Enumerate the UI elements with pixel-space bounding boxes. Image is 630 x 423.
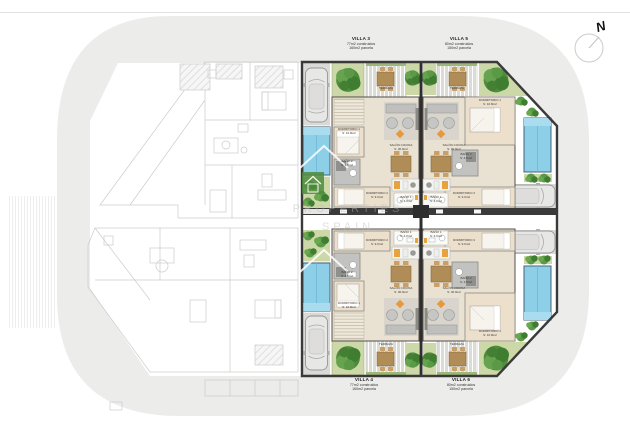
room-label-dorm1-v5: DORMITORIO 1S: 10.8m2 (468, 99, 512, 107)
north-compass (575, 34, 603, 62)
floor-plan-canvas: PROPERTIES SPAIN N VILLA 3 77m2 construi… (0, 0, 630, 423)
villa-6-label: VILLA 6 80m2 construidos 150m2 parcela (430, 377, 492, 391)
room-label-dorm1-v4: DORMITORIO 1S: 10.8m2 (333, 302, 365, 310)
room-label-dorm3-v5: DORMITORIO 3S: 9.0m2 (448, 192, 480, 200)
room-label-bano1-v5: BAÑO 1S: 4.0m2 (423, 196, 449, 204)
room-label-terraza-v6: TERRAZA (442, 343, 472, 347)
room-label-bano2-v5: BAÑO 2S: 4.5m2 (452, 153, 480, 161)
room-label-terraza-v3: TERRAZA (371, 87, 401, 91)
villa-3-label: VILLA 3 77m2 construidos 160m2 parcela (330, 36, 392, 50)
villa-4-label: VILLA 4 77m2 construidos 160m2 parcela (333, 377, 395, 391)
room-label-salon-v4: SALÓN COCINAS: 30.9m2 (384, 287, 418, 295)
room-label-dorm2-v4: DORMITORIO 2S: 9.0m2 (362, 239, 392, 247)
villa-5-label: VILLA 5 80m2 construidos 150m2 parcela (428, 36, 490, 50)
room-label-bano1-v3: BAÑO 1S: 4.0m2 (393, 196, 419, 204)
room-label-salon-v5: SALÓN COCINAS: 30.9m2 (437, 144, 471, 152)
room-label-terraza-v5: TERRAZA (442, 87, 472, 91)
room-label-bano1-v4: BAÑO 1S: 4.0m2 (393, 231, 419, 239)
room-label-dorm2-v3: DORMITORIO 2S: 9.0m2 (362, 192, 392, 200)
room-label-dorm3-v6: DORMITORIO 3S: 9.0m2 (448, 239, 480, 247)
room-label-bano2-v4: BAÑO 2S: 4.5m2 (333, 271, 361, 279)
room-label-dorm1-v6: DORMITORIO 1S: 10.8m2 (468, 330, 512, 338)
room-label-bano2-v3: BAÑO 2S: 4.5m2 (333, 160, 361, 168)
room-label-terraza-v4: TERRAZA (371, 343, 401, 347)
room-label-bano2-v6: BAÑO 2S: 4.5m2 (452, 277, 480, 285)
room-label-bano1-v6: BAÑO 1S: 4.0m2 (423, 231, 449, 239)
room-label-salon-v6: SALÓN COCINAS: 30.9m2 (437, 287, 471, 295)
room-label-salon-v3: SALÓN COCINAS: 30.9m2 (384, 144, 418, 152)
hatched-ground-strip (8, 196, 56, 328)
room-label-dorm1-v3: DORMITORIO 1S: 10.8m2 (333, 128, 365, 136)
site-plan-svg (0, 0, 630, 423)
